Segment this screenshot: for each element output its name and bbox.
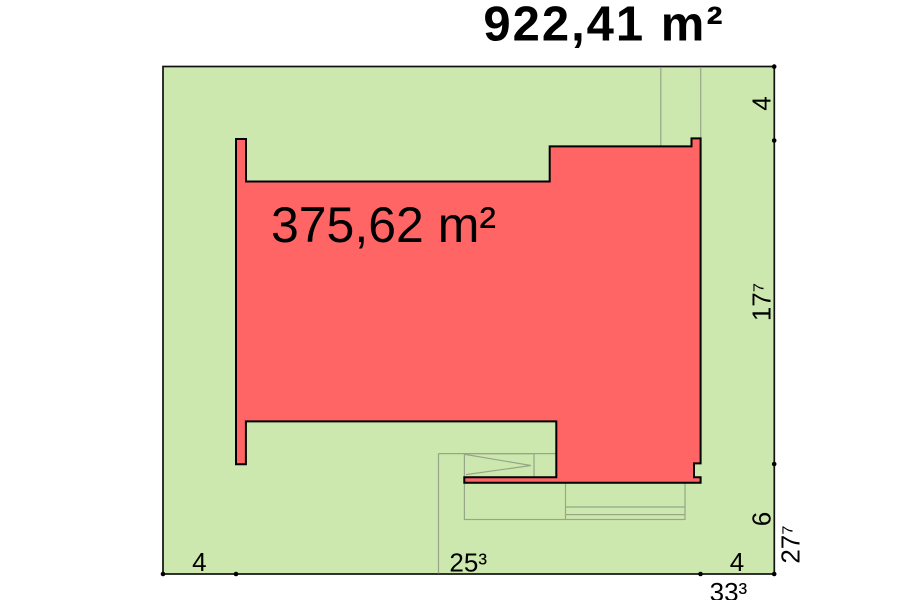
svg-text:4: 4 [730, 547, 744, 577]
svg-text:27⁷: 27⁷ [776, 525, 806, 563]
svg-text:33³: 33³ [710, 577, 748, 600]
svg-text:4: 4 [747, 96, 777, 110]
svg-text:25³: 25³ [449, 548, 487, 578]
svg-text:375,62 m²: 375,62 m² [271, 197, 496, 253]
svg-text:922,41 m²: 922,41 m² [483, 0, 724, 52]
svg-text:4: 4 [192, 547, 206, 577]
svg-text:17⁷: 17⁷ [747, 283, 777, 321]
svg-text:6: 6 [747, 512, 777, 526]
